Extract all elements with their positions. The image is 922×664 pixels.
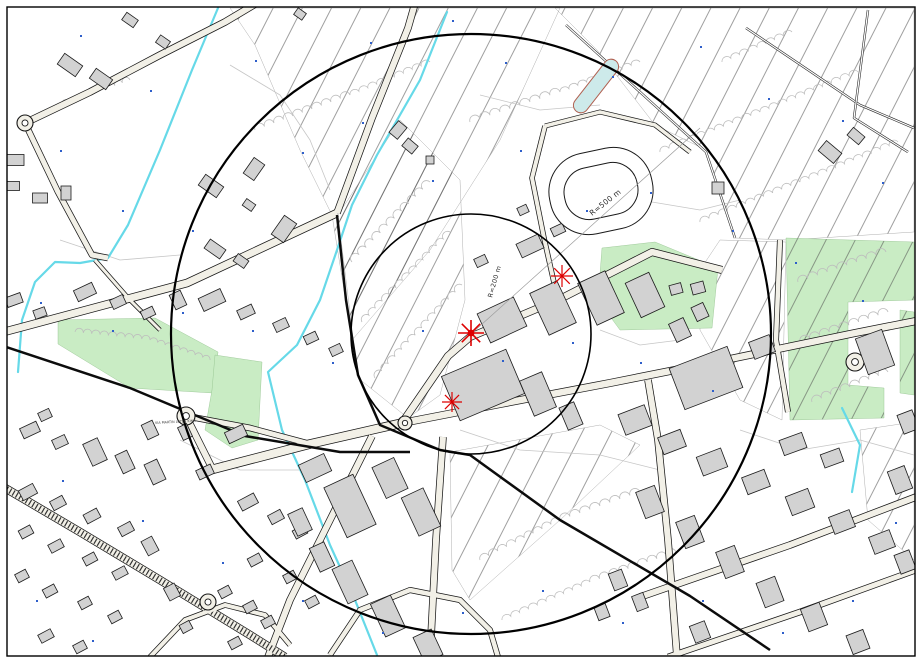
utility-dot [782, 632, 784, 634]
map-stage: R=500 m R=200 m VIA MARTIN LUTER KING [0, 0, 922, 664]
utility-dot [712, 390, 714, 392]
building [33, 193, 48, 203]
utility-dot [432, 180, 434, 182]
utility-dot [732, 230, 734, 232]
utility-dot [612, 76, 614, 78]
utility-dot [700, 46, 702, 48]
utility-dot [622, 622, 624, 624]
building [61, 186, 71, 200]
utility-dot [572, 342, 574, 344]
utility-dot [505, 62, 507, 64]
utility-dot [192, 230, 194, 232]
utility-dot [255, 60, 257, 62]
city-plan-map: R=500 m R=200 m VIA MARTIN LUTER KING [0, 0, 922, 664]
utility-dot [895, 522, 897, 524]
utility-dot [40, 302, 42, 304]
utility-dot [182, 312, 184, 314]
utility-dot [252, 330, 254, 332]
utility-dot [332, 362, 334, 364]
roundabout-island [22, 120, 28, 126]
roundabout-island [402, 420, 407, 425]
building [426, 156, 434, 164]
utility-dot [862, 300, 864, 302]
site-marker [551, 265, 573, 287]
utility-dot [795, 262, 797, 264]
utility-dot [382, 632, 384, 634]
utility-dot [60, 150, 62, 152]
utility-dot [852, 600, 854, 602]
utility-dot [150, 90, 152, 92]
utility-dot [422, 330, 424, 332]
utility-dot [462, 612, 464, 614]
marker-core-dot [468, 330, 475, 337]
utility-dot [452, 20, 454, 22]
utility-dot [520, 150, 522, 152]
utility-dot [702, 600, 704, 602]
utility-dot [768, 98, 770, 100]
utility-dot [302, 600, 304, 602]
utility-dot [112, 330, 114, 332]
utility-dot [882, 182, 884, 184]
utility-dot [362, 122, 364, 124]
utility-dot [370, 42, 372, 44]
utility-dot [640, 362, 642, 364]
building [712, 182, 724, 194]
utility-dot [62, 480, 64, 482]
utility-dot [222, 562, 224, 564]
utility-dot [142, 520, 144, 522]
utility-dot [502, 360, 504, 362]
utility-dot [302, 152, 304, 154]
utility-dot [542, 590, 544, 592]
site-center-marker [458, 320, 484, 346]
utility-dot [36, 600, 38, 602]
roundabout-island [205, 599, 211, 605]
roundabout-island [852, 359, 859, 366]
utility-dot [842, 120, 844, 122]
utility-dot [122, 210, 124, 212]
site-marker [442, 392, 462, 412]
utility-dot [80, 35, 82, 37]
utility-dot [92, 640, 94, 642]
utility-dot [650, 192, 652, 194]
